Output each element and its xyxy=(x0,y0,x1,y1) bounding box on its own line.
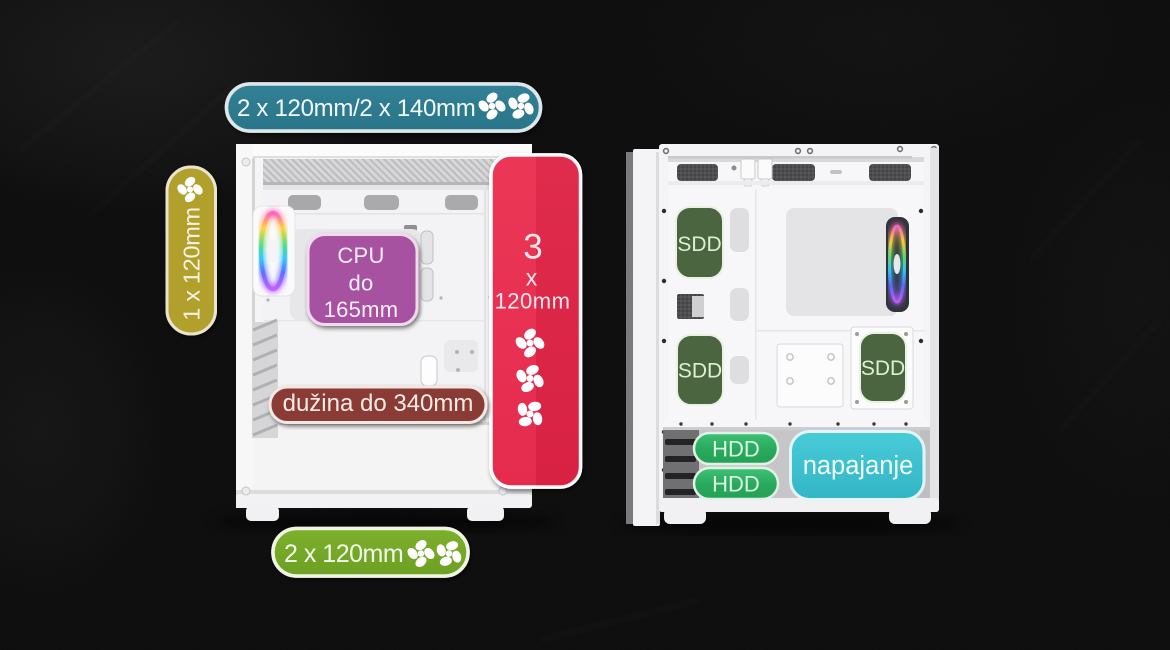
svg-text:3: 3 xyxy=(523,228,542,267)
svg-text:HDD: HDD xyxy=(712,472,760,497)
svg-text:165mm: 165mm xyxy=(324,297,399,322)
svg-text:120mm: 120mm xyxy=(495,289,571,314)
svg-text:HDD: HDD xyxy=(712,437,760,462)
svg-text:dužina do 340mm: dužina do 340mm xyxy=(283,390,474,417)
svg-text:do: do xyxy=(348,271,373,296)
svg-text:1 x 120mm: 1 x 120mm xyxy=(179,207,205,321)
svg-text:SDD: SDD xyxy=(677,233,721,256)
svg-text:2 x 120mm: 2 x 120mm xyxy=(284,540,403,568)
svg-text:2 x 120mm/2 x 140mm: 2 x 120mm/2 x 140mm xyxy=(237,95,475,122)
svg-text:SDD: SDD xyxy=(861,357,905,380)
svg-text:SDD: SDD xyxy=(678,360,722,383)
svg-text:napajanje: napajanje xyxy=(803,452,914,480)
svg-text:CPU: CPU xyxy=(337,243,384,268)
svg-text:x: x xyxy=(526,264,538,290)
